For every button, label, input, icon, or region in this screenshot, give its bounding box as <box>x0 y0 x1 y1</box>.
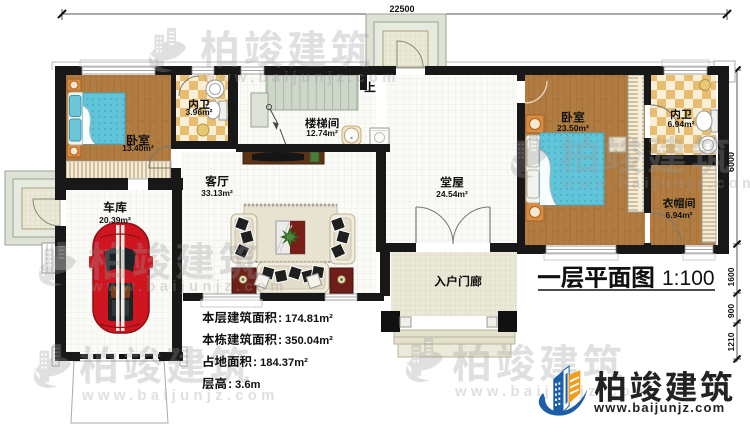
svg-text:22500: 22500 <box>389 4 414 14</box>
svg-text:6.94m²: 6.94m² <box>666 210 693 220</box>
svg-text:1210: 1210 <box>726 332 736 351</box>
svg-text:350.04m²: 350.04m² <box>285 335 333 347</box>
svg-text:www.baijunjz.com: www.baijunjz.com <box>593 400 725 415</box>
svg-text::: : <box>253 355 257 369</box>
svg-text:12.74m²: 12.74m² <box>306 128 338 138</box>
svg-text:900: 900 <box>726 304 736 318</box>
svg-text:174.81m²: 174.81m² <box>285 313 333 325</box>
svg-text:www.baijunjz.com: www.baijunjz.com <box>90 278 288 295</box>
svg-text:23.50m²: 23.50m² <box>557 123 589 133</box>
svg-text:1600: 1600 <box>726 267 736 286</box>
svg-text:3.96m²: 3.96m² <box>186 107 213 117</box>
svg-text:13.40m²: 13.40m² <box>122 143 154 153</box>
svg-text::: : <box>278 311 282 325</box>
svg-text:www.baijunjz.com: www.baijunjz.com <box>562 175 750 192</box>
svg-text::: : <box>278 333 282 347</box>
svg-text:6.94m²: 6.94m² <box>668 119 695 129</box>
svg-text:1:100: 1:100 <box>662 267 715 290</box>
svg-text::: : <box>228 377 232 391</box>
svg-text:20.39m²: 20.39m² <box>99 215 131 225</box>
svg-text:33.13m²: 33.13m² <box>201 188 233 198</box>
svg-text:3.6m: 3.6m <box>235 379 261 391</box>
svg-text:184.37m²: 184.37m² <box>260 357 308 369</box>
svg-text:24.54m²: 24.54m² <box>436 189 468 199</box>
